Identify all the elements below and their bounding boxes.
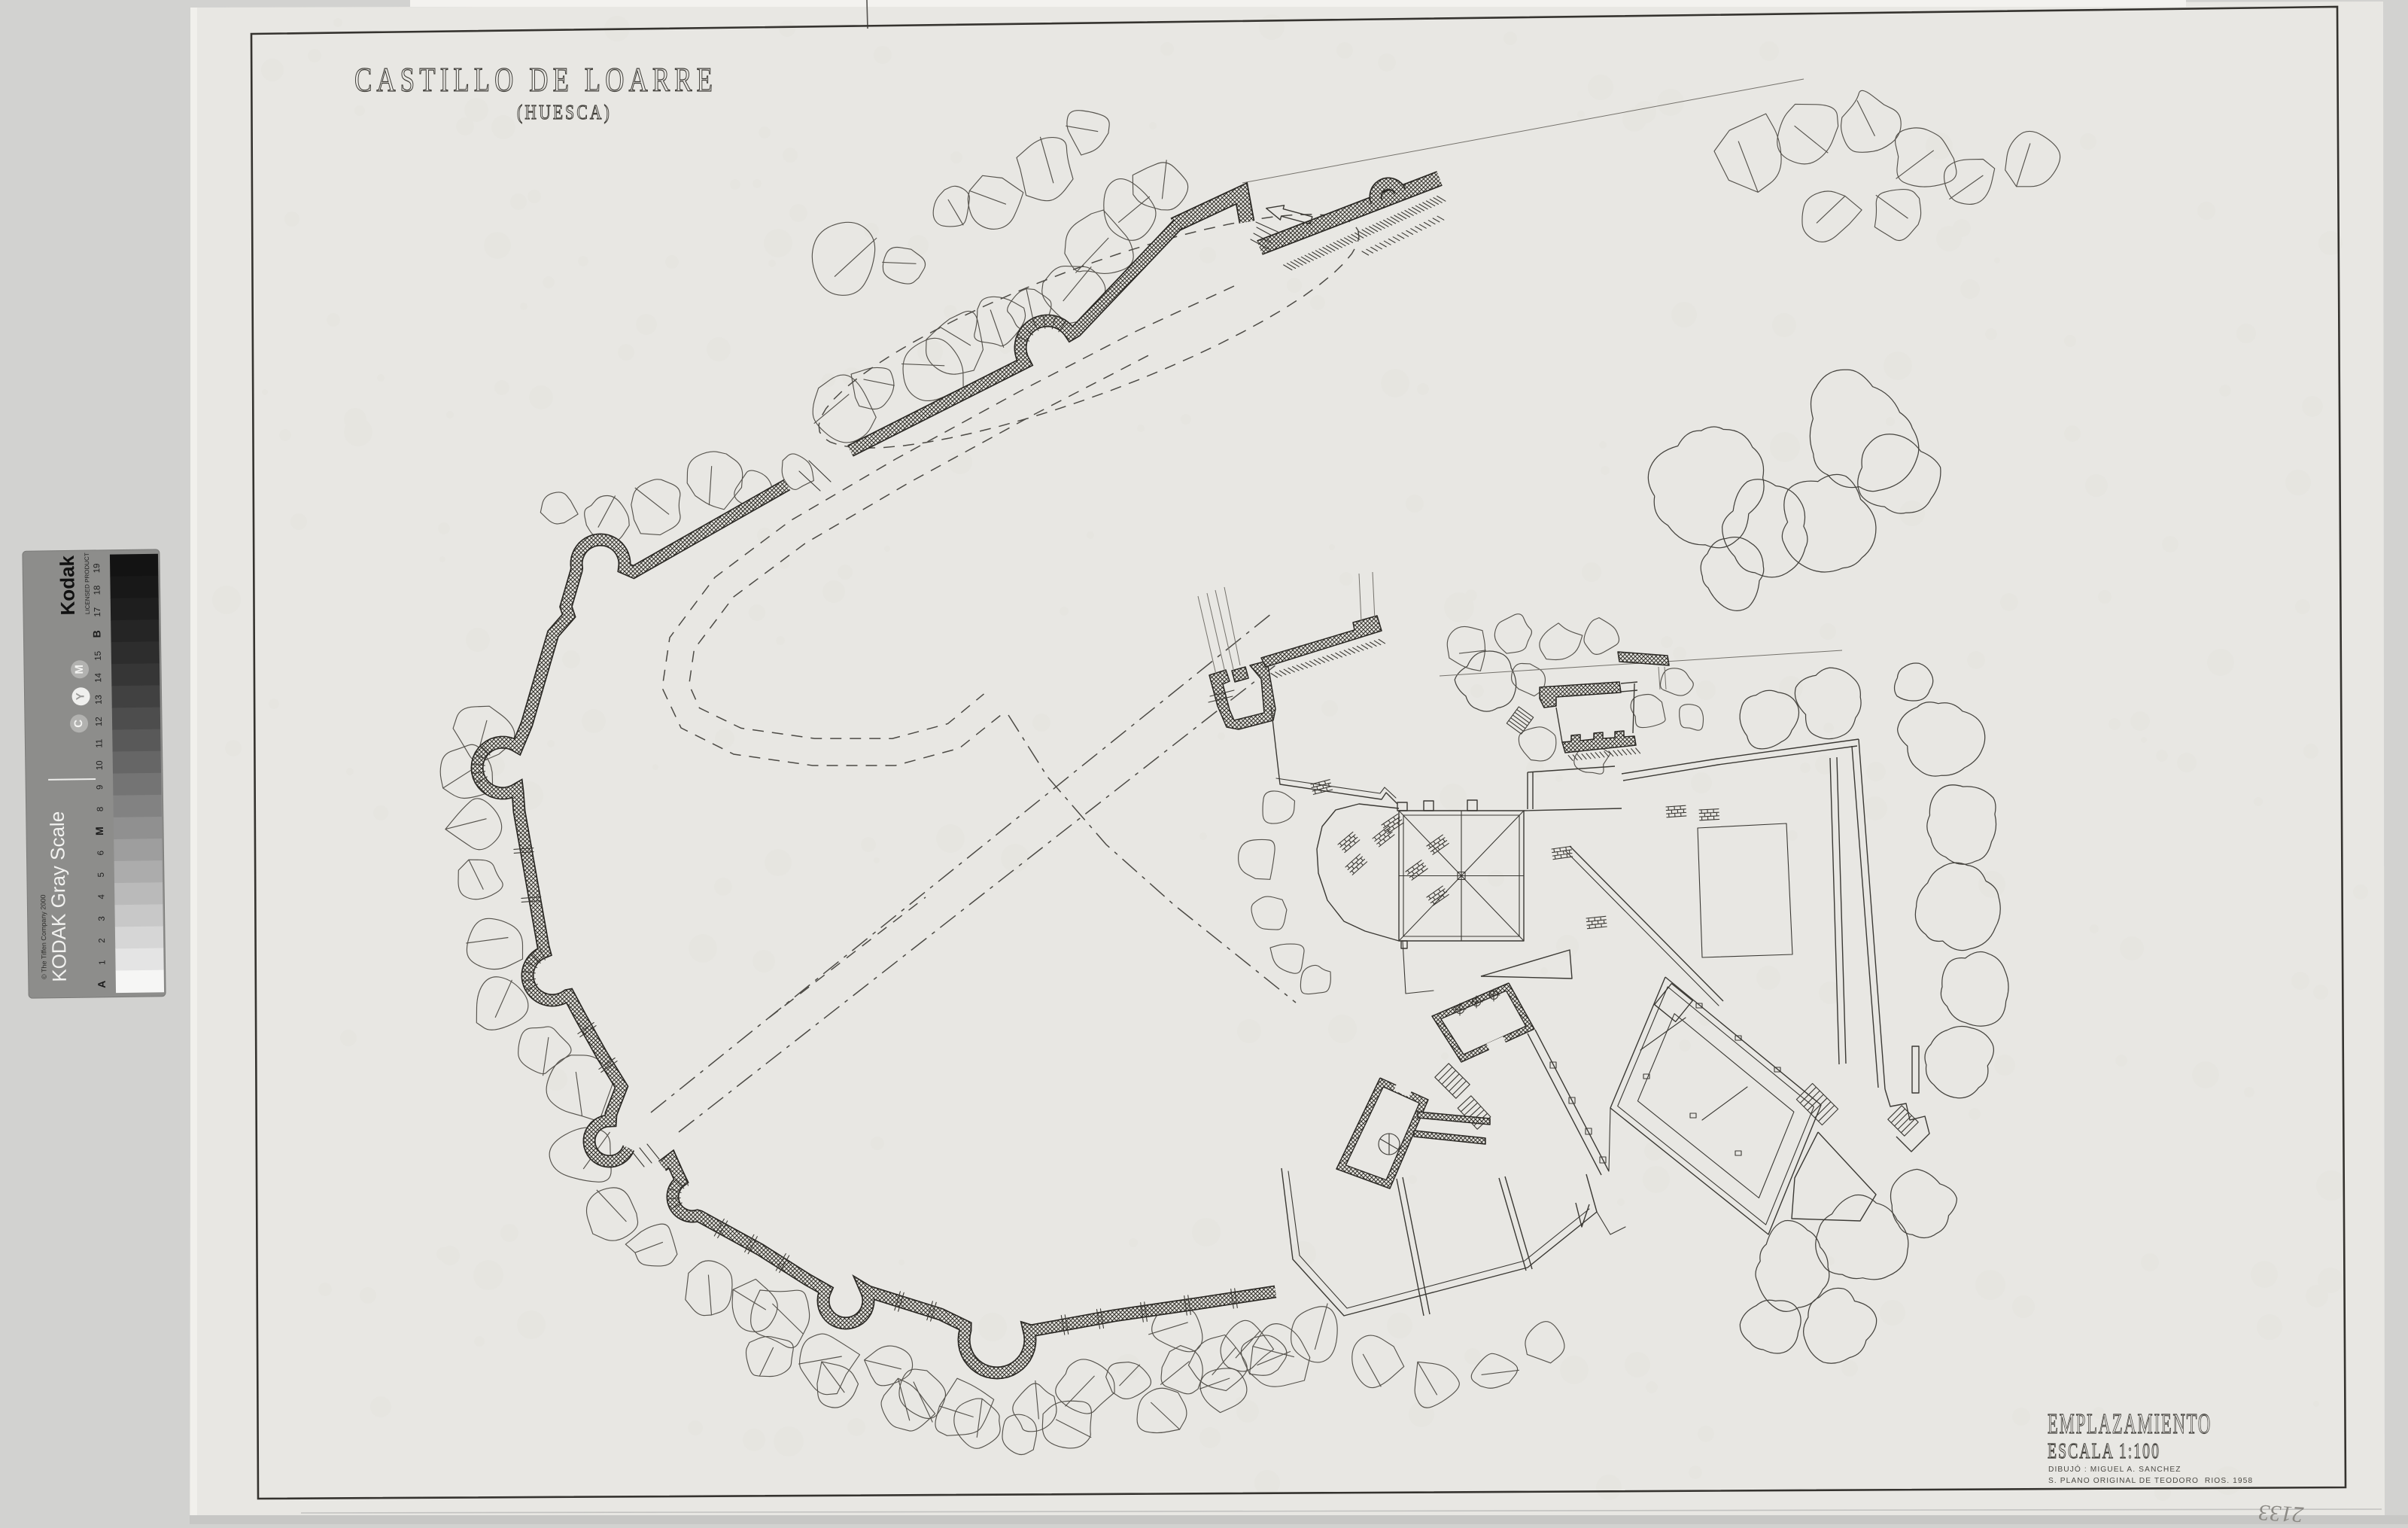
- svg-text:6: 6: [96, 851, 105, 856]
- svg-text:M: M: [73, 665, 86, 674]
- svg-text:10: 10: [96, 760, 105, 770]
- svg-text:A: A: [96, 981, 108, 988]
- svg-text:Kodak: Kodak: [56, 555, 79, 615]
- svg-text:14: 14: [94, 672, 103, 683]
- svg-text:8: 8: [96, 807, 105, 812]
- svg-text:18: 18: [93, 586, 102, 595]
- svg-text:DIBUJÓ : MIGUEL A. SANCHEZ: DIBUJÓ : MIGUEL A. SANCHEZ: [2048, 1464, 2181, 1474]
- svg-text:1: 1: [98, 960, 107, 965]
- svg-text:2: 2: [98, 938, 107, 943]
- svg-text:9: 9: [96, 785, 105, 790]
- svg-text:5: 5: [97, 872, 106, 878]
- svg-text:© The Tiffen Company 2000: © The Tiffen Company 2000: [39, 895, 48, 980]
- svg-text:13: 13: [95, 695, 104, 705]
- svg-text:4: 4: [97, 893, 106, 899]
- svg-text:3: 3: [98, 916, 107, 921]
- svg-text:12: 12: [95, 717, 104, 726]
- svg-text:LICENSED PRODUCT: LICENSED PRODUCT: [84, 552, 91, 614]
- svg-text:S. PLANO ORIGINAL DE TEODORO: S. PLANO ORIGINAL DE TEODORO RIOS. 1958: [2048, 1477, 2253, 1485]
- svg-text:EMPLAZAMIENTO: EMPLAZAMIENTO: [2048, 1408, 2212, 1440]
- svg-text:C: C: [72, 720, 85, 728]
- svg-text:M: M: [93, 826, 105, 836]
- svg-text:19: 19: [93, 563, 102, 573]
- svg-text:ESCALA 1:100: ESCALA 1:100: [2048, 1439, 2160, 1463]
- svg-text:(HUESCA): (HUESCA): [517, 101, 612, 123]
- svg-text:11: 11: [95, 739, 104, 748]
- svg-text:15: 15: [94, 651, 103, 661]
- svg-text:17: 17: [93, 607, 102, 617]
- svg-text:KODAK Gray Scale: KODAK Gray Scale: [46, 811, 71, 982]
- svg-text:2133: 2133: [2257, 1500, 2304, 1524]
- svg-text:Y: Y: [74, 692, 87, 700]
- svg-text:B: B: [90, 630, 102, 638]
- svg-text:CASTILLO DE LOARRE: CASTILLO DE LOARRE: [354, 60, 717, 99]
